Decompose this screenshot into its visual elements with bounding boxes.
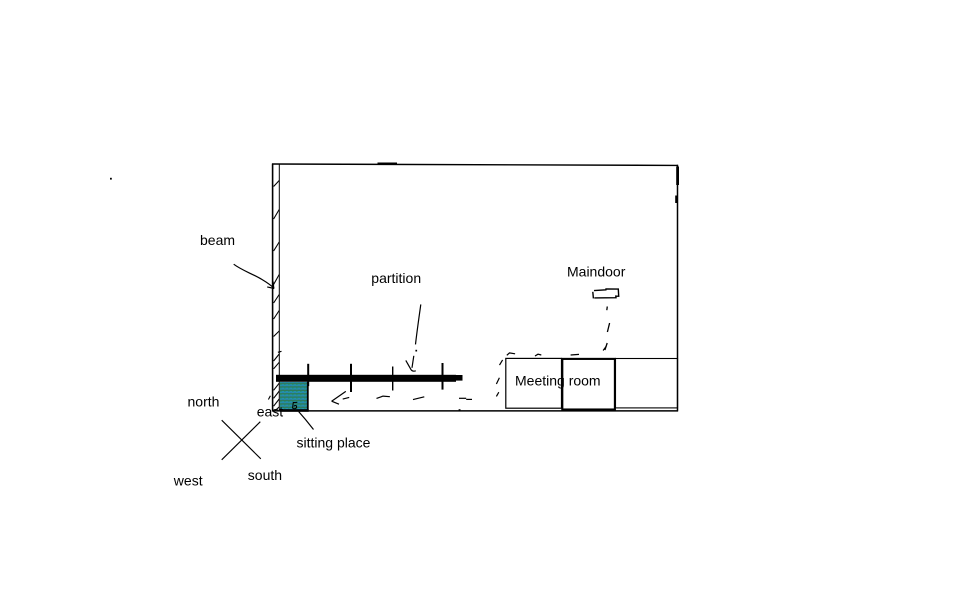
svg-text:Maindoor: Maindoor bbox=[567, 263, 626, 279]
svg-text:sitting place: sitting place bbox=[297, 435, 371, 451]
svg-text:Meeting room: Meeting room bbox=[515, 372, 601, 388]
svg-text:south: south bbox=[248, 467, 282, 483]
svg-text:west: west bbox=[173, 473, 203, 489]
svg-text:partition: partition bbox=[371, 270, 421, 286]
svg-text:north: north bbox=[188, 393, 220, 409]
svg-text:east: east bbox=[257, 403, 284, 419]
svg-text:beam: beam bbox=[200, 232, 235, 248]
